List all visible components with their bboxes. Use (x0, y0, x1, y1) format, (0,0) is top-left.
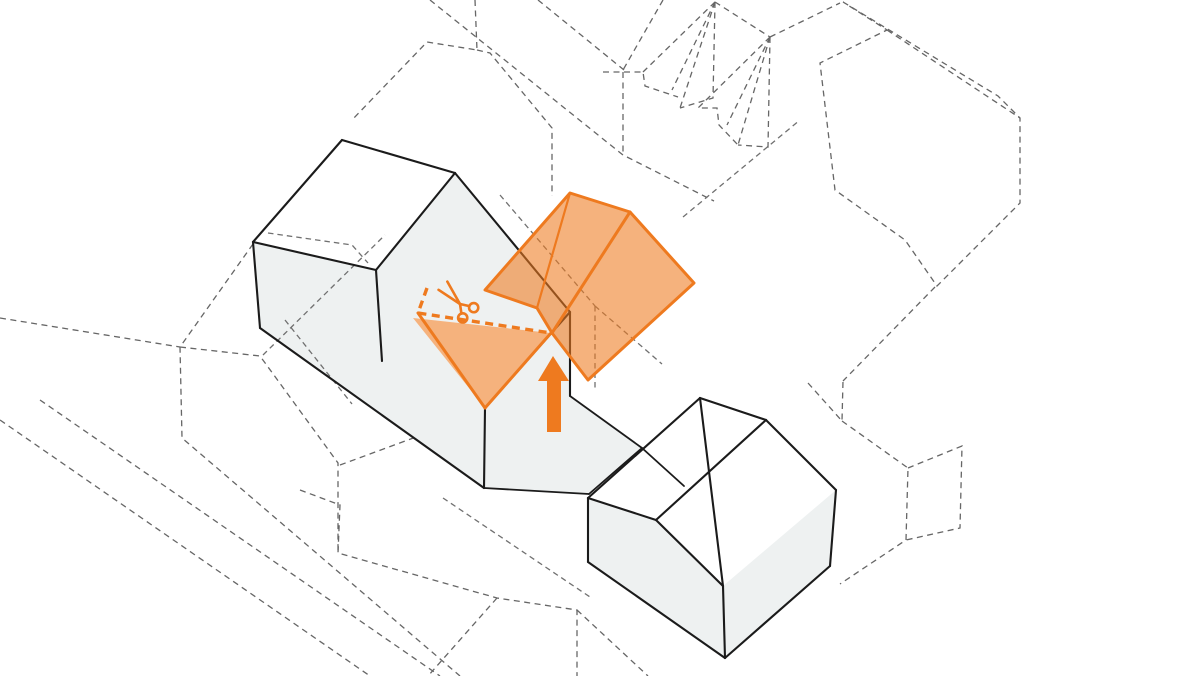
building-edge (484, 408, 485, 488)
axonometric-diagram (0, 0, 1200, 676)
diagram-stage (0, 0, 1200, 676)
